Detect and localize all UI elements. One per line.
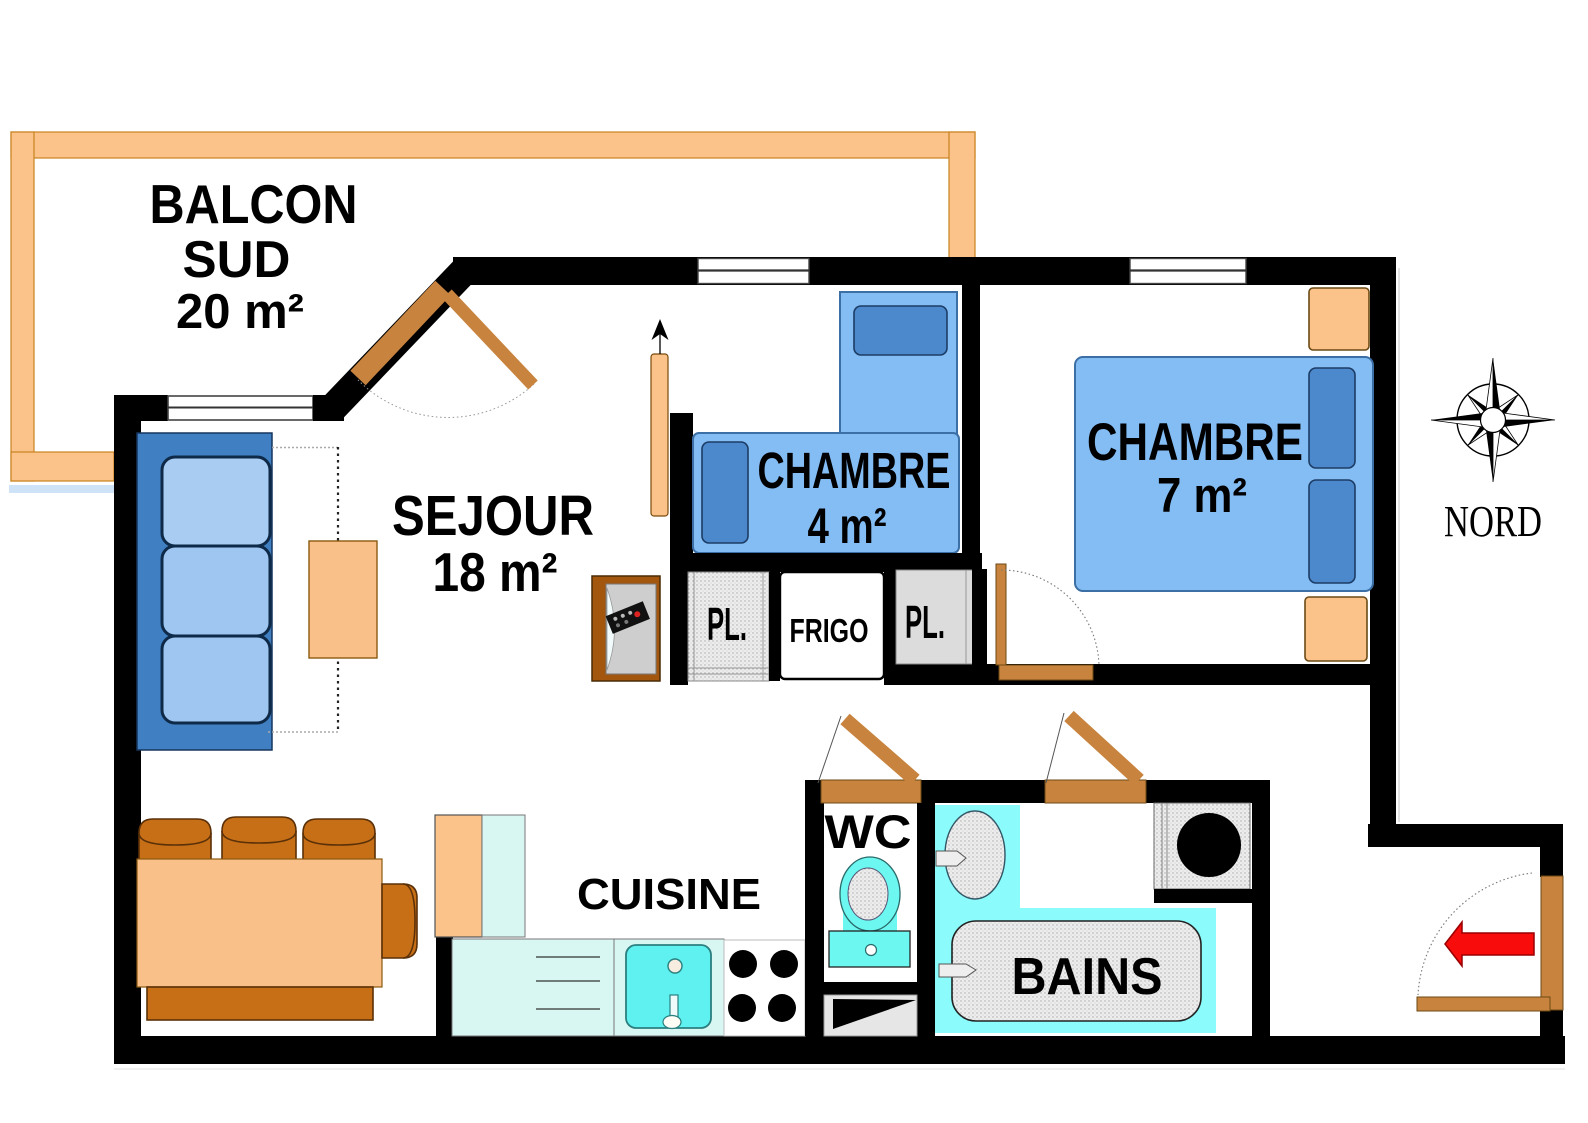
svg-text:FRIGO: FRIGO [790,612,869,649]
svg-text:SEJOUR: SEJOUR [392,484,594,548]
svg-text:CUISINE: CUISINE [577,870,761,919]
svg-text:4 m²: 4 m² [808,498,887,554]
svg-text:PL.: PL. [707,598,747,650]
svg-text:WC: WC [825,805,912,858]
svg-text:BAINS: BAINS [1012,948,1163,1006]
svg-text:NORD: NORD [1444,497,1542,546]
svg-text:CHAMBRE: CHAMBRE [758,442,951,499]
svg-text:CHAMBRE: CHAMBRE [1087,413,1303,472]
svg-text:PL.: PL. [905,596,945,648]
svg-text:20 m²: 20 m² [176,285,304,339]
svg-text:SUD: SUD [183,231,291,289]
svg-text:BALCON: BALCON [150,173,358,235]
svg-text:7 m²: 7 m² [1157,469,1247,523]
svg-text:18 m²: 18 m² [433,541,558,603]
